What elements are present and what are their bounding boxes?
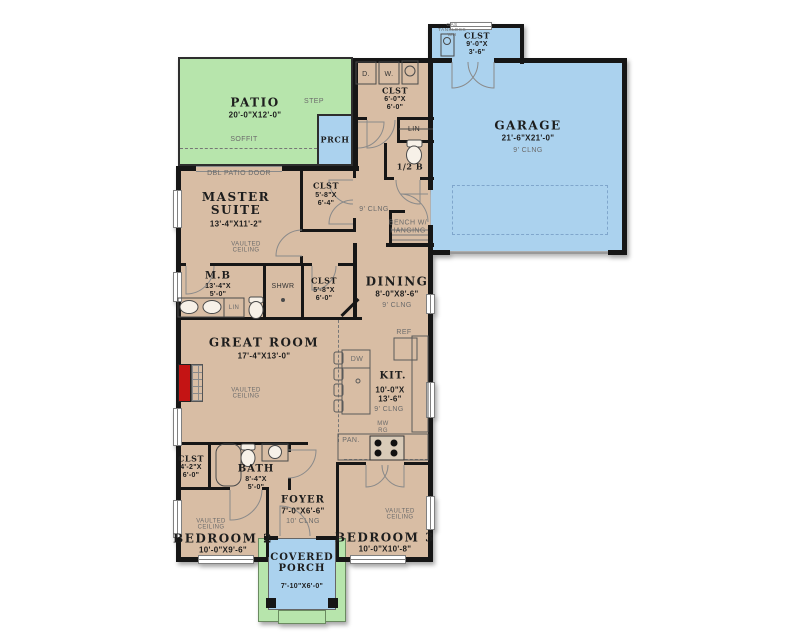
linen-label: LIN bbox=[408, 126, 420, 134]
ref-label: REF bbox=[396, 329, 411, 337]
mb-sink bbox=[203, 301, 221, 314]
hall-closet-dims1: 5'-8"X bbox=[315, 192, 337, 200]
island-faucet bbox=[356, 379, 360, 383]
patio-label: PATIO bbox=[230, 97, 279, 110]
door-arc bbox=[468, 62, 494, 88]
right-counter bbox=[412, 336, 428, 432]
washer-label: W. bbox=[385, 71, 394, 79]
dining-label: DINING bbox=[366, 276, 429, 289]
dryer-label: D. bbox=[362, 71, 370, 79]
door-arc bbox=[358, 122, 384, 148]
pantry-label: PAN. bbox=[342, 437, 359, 445]
garage-closet-dims1: 9'-0"X bbox=[466, 41, 488, 49]
bed2-closet-label: CLST bbox=[178, 455, 204, 464]
garage-dims: 21'-6"X21'-0" bbox=[502, 135, 555, 144]
great-room-vaulted-label: VAULTED CEILING bbox=[223, 388, 269, 401]
half-bath-label: 1/2 B bbox=[397, 163, 424, 172]
laundry-closet-label: CLST bbox=[382, 87, 408, 96]
step-label: STEP bbox=[304, 98, 324, 106]
dining-ceiling-label: 9' CLNG bbox=[382, 302, 411, 310]
shower-label: SHWR bbox=[272, 283, 295, 291]
bench-label: BENCH W/ HANGING bbox=[381, 219, 435, 234]
hall-ceiling-label: 9' CLNG bbox=[359, 206, 388, 214]
burner bbox=[375, 440, 382, 447]
great-room-dims: 17'-4"X13'-0" bbox=[238, 353, 291, 362]
master-bath-dims2: 5'-0" bbox=[210, 291, 227, 299]
burner bbox=[375, 450, 382, 457]
dbl-patio-door-label: DBL PATIO DOOR bbox=[207, 170, 271, 178]
laundry-closet-dims1: 6'-0"X bbox=[384, 96, 406, 104]
bed2-vaulted-label: VAULTED CEILING bbox=[188, 519, 234, 532]
toilet-bowl bbox=[249, 302, 263, 319]
great-room-label: GREAT ROOM bbox=[209, 337, 319, 350]
mb-sink bbox=[180, 301, 198, 314]
master-closet-dims1: 5'-8"X bbox=[313, 287, 335, 295]
door-arc bbox=[382, 465, 404, 487]
master-vaulted-label: VAULTED CEILING bbox=[223, 242, 269, 255]
covered-porch-label: COVERED PORCH bbox=[270, 553, 334, 575]
utility-sink-basin bbox=[405, 66, 415, 76]
covered-porch-dims: 7'-10"X6'-0" bbox=[281, 583, 323, 591]
bed2-closet-dims2: 6'-0" bbox=[183, 472, 200, 480]
soffit-label: SOFFIT bbox=[230, 136, 257, 144]
master-suite-dims: 13'-4"X11'-2" bbox=[210, 221, 262, 230]
patio-dims: 20'-0"X12'-0" bbox=[229, 112, 282, 121]
mb-linen-label: LIN bbox=[229, 305, 240, 311]
master-suite-label: MASTER SUITE bbox=[194, 191, 278, 217]
door-arc bbox=[396, 180, 420, 204]
hall-closet-dims2: 6'-4" bbox=[318, 200, 335, 208]
utility-sink bbox=[402, 61, 418, 84]
bed2-closet-dims1: 4'-2"X bbox=[180, 464, 202, 472]
door-swing-arcs bbox=[186, 62, 494, 536]
bath-dims1: 8'-4"X bbox=[245, 476, 267, 484]
door-arc bbox=[452, 62, 478, 88]
floor-plan: PATIO 20'-0"X12'-0" STEP SOFFIT PRCH DBL… bbox=[0, 0, 800, 638]
bath-dims2: 5'-0" bbox=[248, 484, 265, 492]
bedroom3-dims: 10'-0"X10'-8" bbox=[359, 546, 412, 555]
garage-closet-dims2: 3'-6" bbox=[469, 49, 486, 57]
hall-closet-label: CLST bbox=[313, 182, 339, 191]
bath-sink bbox=[269, 446, 282, 459]
bedroom3-label: BEDROOM 3 bbox=[335, 532, 435, 545]
refrigerator bbox=[394, 338, 417, 360]
burner bbox=[391, 450, 398, 457]
door-arc bbox=[288, 450, 316, 478]
garage-label: GARAGE bbox=[494, 120, 561, 133]
bedroom2-label: BEDROOM 2 bbox=[173, 533, 273, 546]
foyer-dims: 7'-0"X6'-6" bbox=[281, 508, 324, 517]
dining-dims: 8'-0"X8'-6" bbox=[375, 291, 418, 300]
master-closet-label: CLST bbox=[311, 277, 337, 286]
garage-ceiling-label: 9' CLNG bbox=[513, 147, 542, 155]
burner bbox=[391, 440, 398, 447]
bath-label: BATH bbox=[238, 465, 275, 476]
garage-closet-label: CLST bbox=[464, 32, 490, 41]
kitchen-dims2: 13'-6" bbox=[378, 396, 402, 405]
kitchen-label: KIT. bbox=[379, 372, 406, 383]
shower-drain bbox=[282, 299, 285, 302]
bed3-vaulted-label: VAULTED CEILING bbox=[377, 509, 423, 522]
prch-label: PRCH bbox=[321, 136, 350, 145]
master-closet-dims2: 6'-0" bbox=[316, 295, 333, 303]
range bbox=[370, 436, 404, 460]
foyer-ceiling-label: 10' CLNG bbox=[286, 518, 320, 526]
door-arc bbox=[276, 230, 302, 256]
master-bath-label: M.B bbox=[205, 272, 231, 283]
kitchen-ceiling-label: 9' CLNG bbox=[374, 406, 403, 414]
range-label: RG bbox=[378, 428, 388, 434]
bedroom2-dims: 10'-0"X9'-6" bbox=[199, 547, 247, 556]
foyer-label: FOYER bbox=[281, 496, 325, 507]
laundry-closet-dims2: 6'-0" bbox=[387, 104, 404, 112]
microwave-label: MW bbox=[377, 421, 388, 427]
door-arc bbox=[230, 490, 262, 520]
dw-label: DW bbox=[351, 356, 363, 364]
master-bath-dims1: 13'-4"X bbox=[205, 283, 231, 291]
